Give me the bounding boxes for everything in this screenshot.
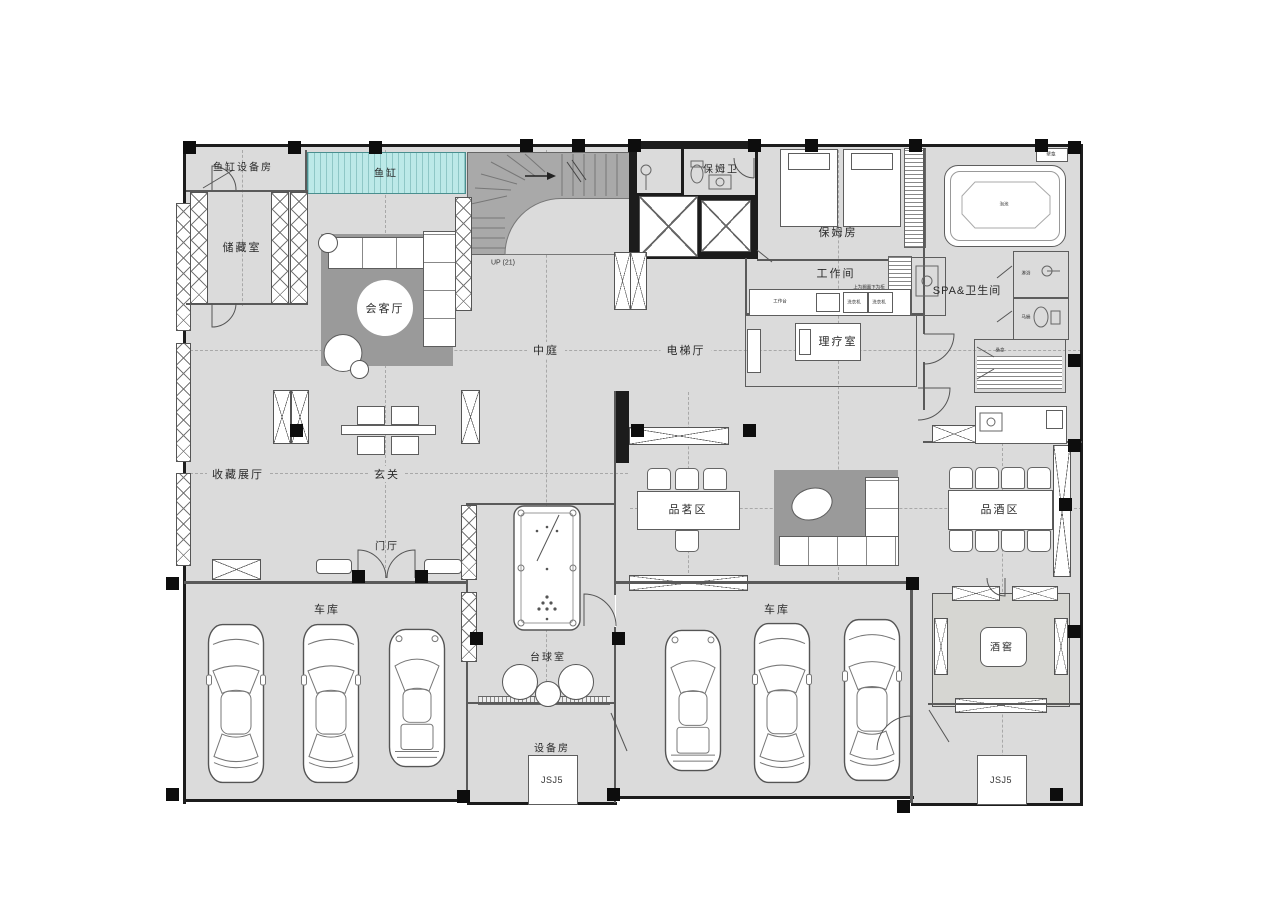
- pool-table: [513, 505, 581, 631]
- hatched-wall: [273, 390, 291, 444]
- column: [631, 424, 644, 437]
- column: [612, 632, 625, 645]
- small-label-niche: 壁龛: [1047, 151, 1056, 157]
- floor-plan: 鱼缸设备房 鱼缸 储藏室 会客厅 UP (21) 中庭 电梯厅 保姆卫 保姆房 …: [0, 0, 1280, 905]
- sauna-bench: [977, 356, 1062, 389]
- column: [369, 141, 382, 154]
- column: [288, 141, 301, 154]
- chair: [949, 530, 973, 552]
- hatched-wall: [955, 698, 1047, 713]
- column: [457, 790, 470, 803]
- column: [166, 577, 179, 590]
- chair: [1027, 467, 1051, 489]
- room-label-nanny-room: 保姆房: [819, 224, 858, 240]
- room-label-tea: 品茗区: [669, 501, 708, 517]
- hatched-wall: [461, 592, 477, 662]
- hatched-wall: [1054, 618, 1068, 675]
- hatched-wall: [461, 505, 477, 580]
- car: [663, 628, 723, 773]
- massage-pillow: [799, 329, 811, 355]
- stair-direction-note: UP (21): [491, 260, 515, 267]
- hatched-wall: [290, 192, 308, 304]
- column: [607, 788, 620, 801]
- column: [166, 788, 179, 801]
- sofa: [865, 477, 899, 537]
- wall-segment: [910, 583, 913, 803]
- stool: [391, 436, 419, 455]
- room-label-elevator-hall: 电梯厅: [661, 342, 712, 358]
- column: [290, 424, 303, 437]
- sofa: [328, 237, 432, 269]
- round-table: [535, 681, 561, 707]
- hatched-wall: [455, 197, 472, 311]
- car: [206, 622, 266, 785]
- hatched-wall: [630, 252, 647, 310]
- hatched-wall: [1012, 586, 1058, 601]
- chair: [675, 530, 699, 552]
- room-label-entry: 玄关: [369, 466, 405, 482]
- room-label-cellar: 酒窖: [990, 639, 1014, 654]
- column: [805, 139, 818, 152]
- small-label-washer: 洗衣机: [847, 299, 860, 305]
- hatched-wall: [176, 473, 191, 566]
- chair: [1001, 530, 1025, 552]
- column: [628, 139, 641, 152]
- pillow: [851, 153, 893, 170]
- wall-segment: [614, 796, 914, 799]
- column: [748, 139, 761, 152]
- car: [752, 621, 812, 785]
- wall-segment: [923, 362, 925, 410]
- stool: [391, 406, 419, 425]
- sink-cabinet: [816, 293, 840, 312]
- column: [1068, 439, 1081, 452]
- room-label-equipment: 设备房: [534, 740, 570, 755]
- wall-segment: [757, 259, 907, 261]
- column: [743, 424, 756, 437]
- small-label-worktable: 工作台: [773, 298, 786, 304]
- barrel-chair: [558, 664, 594, 700]
- chair: [647, 468, 671, 490]
- column: [352, 570, 365, 583]
- stove: [1046, 410, 1063, 429]
- chair: [703, 468, 727, 490]
- dashed-axis: [185, 350, 1081, 351]
- pillow: [788, 153, 830, 170]
- car: [842, 617, 902, 783]
- column: [520, 139, 533, 152]
- hatched-wall: [952, 586, 1000, 601]
- column: [1059, 498, 1072, 511]
- staircase: [467, 152, 630, 255]
- label-jsj5-left: JSJ5: [541, 775, 563, 785]
- wall-segment: [615, 391, 629, 463]
- console-table: [341, 425, 436, 435]
- elevator-shaft: [701, 200, 751, 252]
- car: [387, 627, 447, 769]
- hatched-wall: [614, 252, 631, 310]
- hatched-wall: [934, 618, 948, 675]
- room-label-garage-left: 车库: [314, 601, 340, 617]
- sofa: [423, 231, 456, 347]
- hatched-wall: [461, 390, 480, 444]
- chair: [1001, 467, 1025, 489]
- hatched-wall: [176, 203, 191, 331]
- column: [470, 632, 483, 645]
- column: [1068, 354, 1081, 367]
- nanny-bath-floor: [637, 149, 681, 193]
- room-label-garage-right: 车库: [764, 601, 790, 617]
- chair: [675, 468, 699, 490]
- hatched-wall: [190, 192, 208, 304]
- wall-segment: [305, 150, 307, 192]
- wall-segment: [1080, 144, 1083, 806]
- display-case: [212, 559, 261, 580]
- room-label-foyer: 门厅: [375, 538, 399, 553]
- small-label-sauna: 桑拿: [996, 347, 1005, 353]
- wall-segment: [616, 581, 912, 584]
- hatched-wall: [271, 192, 289, 304]
- chair: [949, 467, 973, 489]
- foyer-bench: [316, 559, 352, 574]
- wall-segment: [928, 703, 1080, 705]
- room-label-spa: SPA&卫生间: [933, 282, 1002, 298]
- small-label-spa-tub: 泡池: [1000, 201, 1009, 207]
- column: [572, 139, 585, 152]
- barrel-chair: [502, 664, 538, 700]
- column: [909, 139, 922, 152]
- column: [1068, 625, 1081, 638]
- small-label-toilet: 马桶: [1022, 314, 1031, 320]
- small-label-washer: 洗衣机: [872, 299, 885, 305]
- column: [1068, 141, 1081, 154]
- hatched-wall: [1053, 445, 1071, 577]
- small-label-cabinet-note: 上为搁置下为柜: [853, 284, 884, 290]
- sofa: [779, 536, 899, 566]
- small-label-shower: 淋浴: [1022, 270, 1031, 276]
- cabinet: [747, 329, 761, 373]
- wall-segment: [614, 627, 616, 803]
- car: [301, 622, 361, 785]
- side-table: [318, 233, 338, 253]
- hatched-wall: [176, 343, 191, 462]
- room-label-storage: 储藏室: [223, 239, 262, 255]
- room-label-fish-tank: 鱼缸: [374, 165, 398, 180]
- room-label-reception: 会客厅: [366, 300, 405, 316]
- wall-segment: [183, 799, 470, 802]
- column: [897, 800, 910, 813]
- side-table: [350, 360, 369, 379]
- column: [415, 570, 428, 583]
- room-label-wine-tasting: 品酒区: [981, 501, 1020, 517]
- chair: [975, 530, 999, 552]
- room-label-therapy: 理疗室: [819, 333, 858, 349]
- elevator-shaft: [639, 196, 698, 257]
- stool: [357, 436, 385, 455]
- room-label-billiards: 台球室: [530, 649, 566, 664]
- room-label-collection: 收藏展厅: [207, 466, 269, 482]
- hatched-wall: [932, 425, 976, 443]
- hatched-wall: [629, 427, 729, 445]
- column: [1050, 788, 1063, 801]
- wall-segment: [614, 391, 616, 595]
- column: [183, 141, 196, 154]
- chair: [975, 467, 999, 489]
- label-jsj5-right: JSJ5: [990, 775, 1012, 785]
- column: [906, 577, 919, 590]
- room-label-fish-equipment: 鱼缸设备房: [213, 159, 273, 174]
- stool: [357, 406, 385, 425]
- wall-segment: [745, 258, 747, 315]
- chair: [1027, 530, 1051, 552]
- foyer-bench: [424, 559, 462, 574]
- room-label-nanny-bath: 保姆卫: [703, 161, 739, 176]
- room-label-workroom: 工作间: [817, 265, 856, 281]
- room-label-atrium: 中庭: [527, 342, 565, 358]
